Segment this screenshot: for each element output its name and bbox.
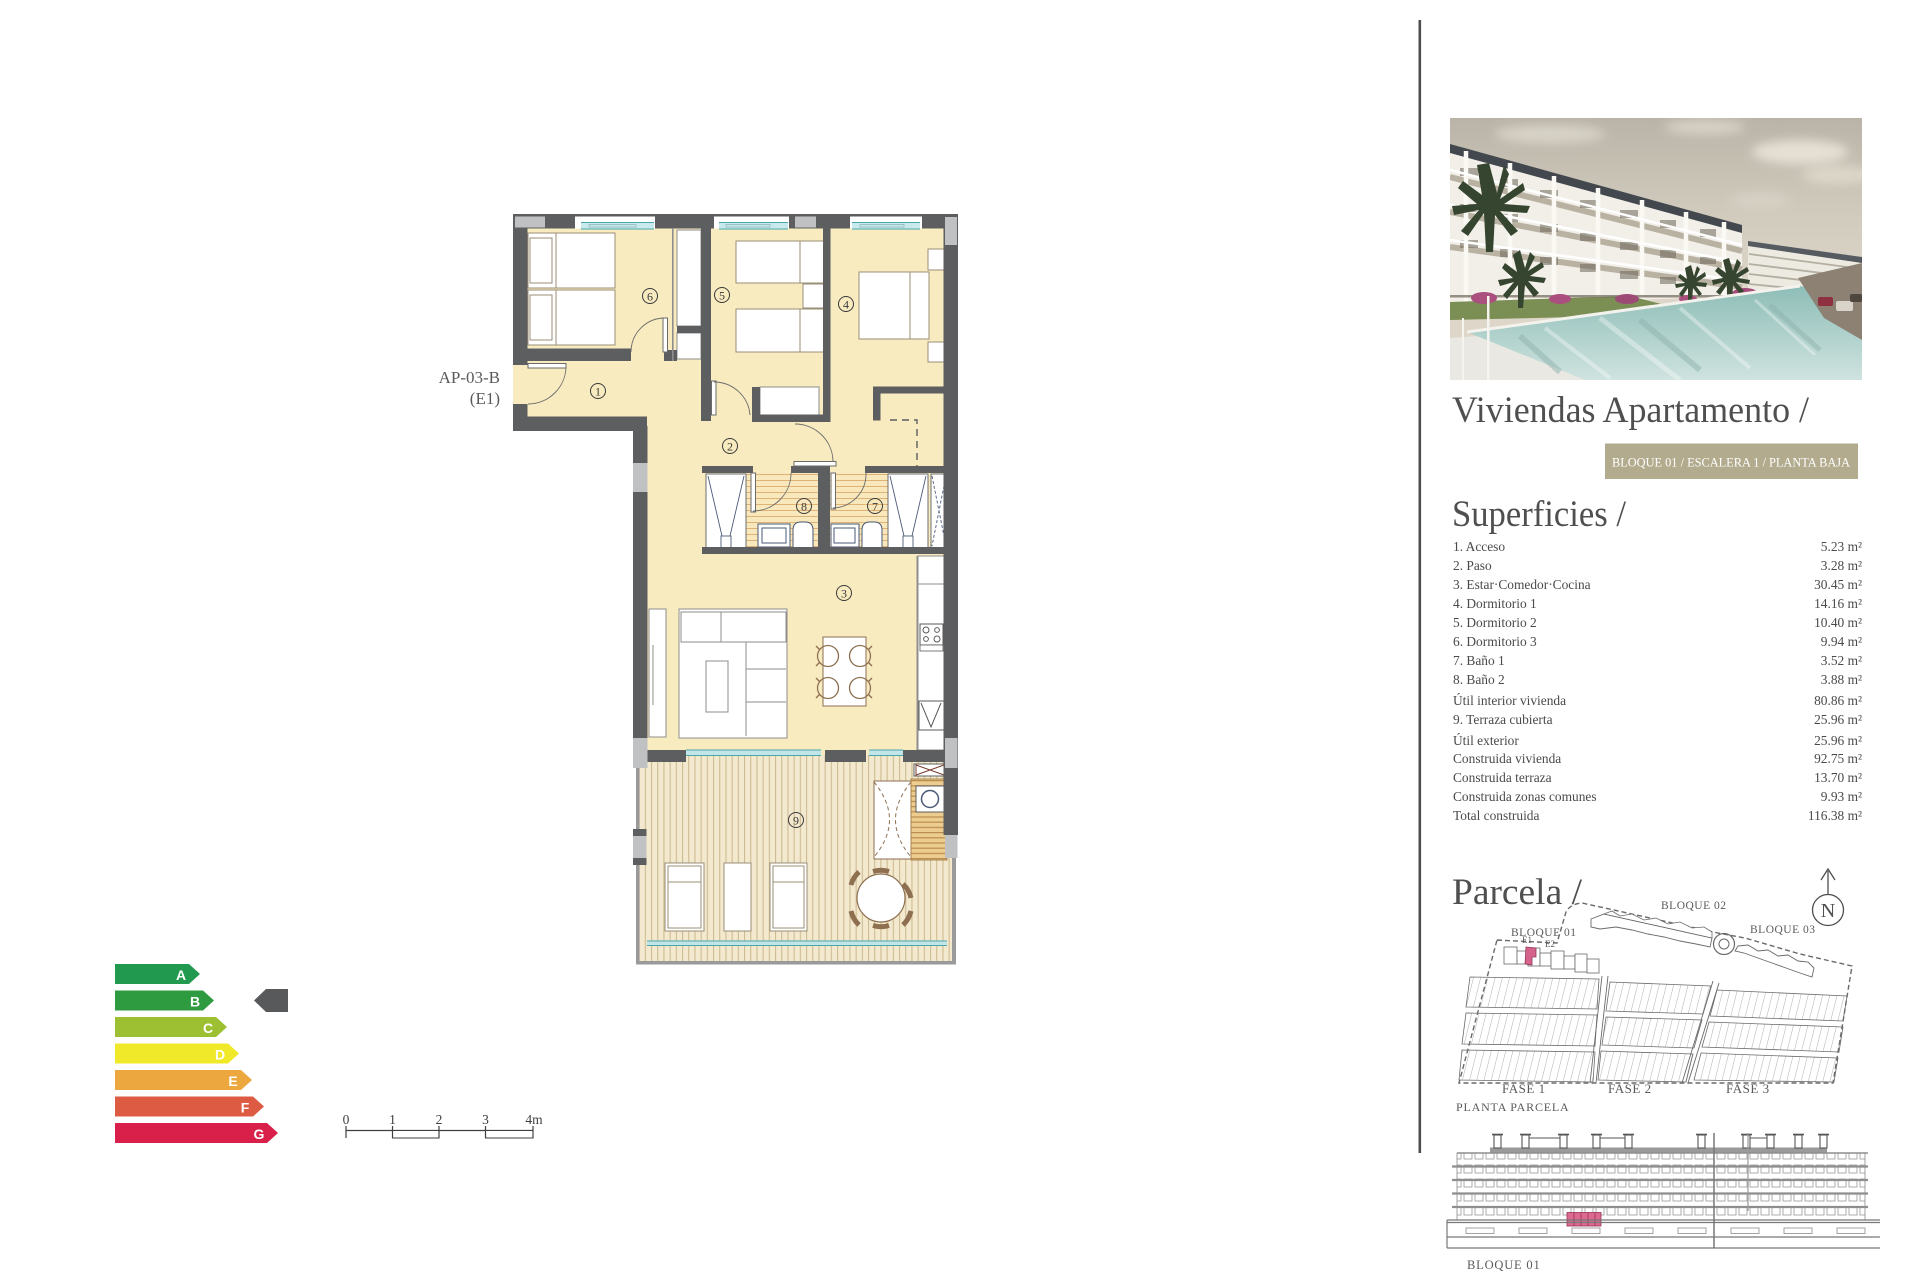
- svg-text:Total construida: Total construida: [1453, 808, 1540, 823]
- svg-text:7. Baño 1: 7. Baño 1: [1453, 653, 1505, 668]
- svg-text:PLANTA PARCELA: PLANTA PARCELA: [1456, 1100, 1569, 1114]
- svg-text:A: A: [176, 967, 186, 983]
- svg-text:7: 7: [872, 500, 878, 514]
- svg-text:G: G: [254, 1126, 265, 1142]
- svg-text:92.75 m²: 92.75 m²: [1814, 751, 1862, 766]
- svg-text:8. Baño 2: 8. Baño 2: [1453, 672, 1505, 687]
- svg-text:2. Paso: 2. Paso: [1453, 558, 1492, 573]
- svg-text:B: B: [190, 994, 200, 1010]
- svg-text:F: F: [241, 1100, 250, 1116]
- svg-text:5.23 m²: 5.23 m²: [1821, 539, 1862, 554]
- svg-text:1: 1: [595, 385, 601, 399]
- svg-text:3: 3: [482, 1112, 489, 1127]
- svg-text:3.52 m²: 3.52 m²: [1821, 653, 1862, 668]
- svg-text:E1: E1: [1522, 935, 1532, 945]
- svg-text:3: 3: [841, 587, 847, 601]
- svg-text:2: 2: [727, 440, 733, 454]
- svg-text:FASE 2: FASE 2: [1608, 1081, 1652, 1096]
- svg-text:Superficies /: Superficies /: [1452, 494, 1627, 535]
- svg-text:9.94 m²: 9.94 m²: [1821, 634, 1862, 649]
- svg-text:Construida zonas comunes: Construida zonas comunes: [1453, 789, 1597, 804]
- svg-text:Construida vivienda: Construida vivienda: [1453, 751, 1561, 766]
- svg-text:BLOQUE 02: BLOQUE 02: [1661, 900, 1727, 912]
- svg-text:Útil interior vivienda: Útil interior vivienda: [1453, 693, 1566, 708]
- svg-text:2: 2: [436, 1112, 443, 1127]
- svg-text:N: N: [1821, 900, 1835, 922]
- svg-text:4m: 4m: [525, 1112, 543, 1127]
- svg-text:25.96 m²: 25.96 m²: [1814, 733, 1862, 748]
- svg-text:6. Dormitorio 3: 6. Dormitorio 3: [1453, 634, 1537, 649]
- svg-text:5. Dormitorio 2: 5. Dormitorio 2: [1453, 615, 1537, 630]
- svg-text:E: E: [228, 1073, 237, 1089]
- svg-text:25.96 m²: 25.96 m²: [1814, 712, 1862, 727]
- svg-text:3.28 m²: 3.28 m²: [1821, 558, 1862, 573]
- svg-text:6: 6: [647, 290, 653, 304]
- svg-text:80.86 m²: 80.86 m²: [1814, 693, 1862, 708]
- svg-text:(E1): (E1): [470, 389, 500, 408]
- svg-text:9.93 m²: 9.93 m²: [1821, 789, 1862, 804]
- svg-text:9. Terraza cubierta: 9. Terraza cubierta: [1453, 712, 1553, 727]
- svg-text:BLOQUE 01: BLOQUE 01: [1467, 1258, 1541, 1272]
- svg-text:BLOQUE 01: BLOQUE 01: [1511, 927, 1577, 939]
- svg-text:Construida terraza: Construida terraza: [1453, 770, 1552, 785]
- svg-text:5: 5: [719, 289, 725, 303]
- svg-text:AP-03-B: AP-03-B: [439, 368, 500, 387]
- svg-text:4. Dormitorio 1: 4. Dormitorio 1: [1453, 596, 1537, 611]
- svg-text:C: C: [203, 1020, 213, 1036]
- svg-text:1. Acceso: 1. Acceso: [1453, 539, 1505, 554]
- svg-text:3.88 m²: 3.88 m²: [1821, 672, 1862, 687]
- svg-text:0: 0: [343, 1112, 350, 1127]
- svg-text:9: 9: [793, 814, 799, 828]
- svg-text:30.45 m²: 30.45 m²: [1814, 577, 1862, 592]
- svg-text:BLOQUE 03: BLOQUE 03: [1750, 924, 1816, 936]
- svg-text:BLOQUE 01 / ESCALERA 1 / PLANT: BLOQUE 01 / ESCALERA 1 / PLANTA BAJA: [1612, 456, 1850, 470]
- svg-text:D: D: [215, 1047, 225, 1063]
- svg-text:3. Estar·Comedor·Cocina: 3. Estar·Comedor·Cocina: [1453, 577, 1591, 592]
- svg-text:E2: E2: [1545, 939, 1555, 949]
- svg-text:Útil exterior: Útil exterior: [1453, 733, 1519, 748]
- svg-text:4: 4: [843, 298, 849, 312]
- svg-text:10.40 m²: 10.40 m²: [1814, 615, 1862, 630]
- svg-text:116.38 m²: 116.38 m²: [1808, 808, 1862, 823]
- svg-text:14.16 m²: 14.16 m²: [1814, 596, 1862, 611]
- svg-text:Viviendas Apartamento /: Viviendas Apartamento /: [1452, 390, 1810, 431]
- svg-text:8: 8: [801, 500, 807, 514]
- svg-text:FASE 1: FASE 1: [1502, 1081, 1546, 1096]
- svg-text:1: 1: [389, 1112, 396, 1127]
- svg-text:FASE 3: FASE 3: [1726, 1081, 1770, 1096]
- svg-text:Parcela /: Parcela /: [1452, 872, 1583, 913]
- svg-text:13.70 m²: 13.70 m²: [1814, 770, 1862, 785]
